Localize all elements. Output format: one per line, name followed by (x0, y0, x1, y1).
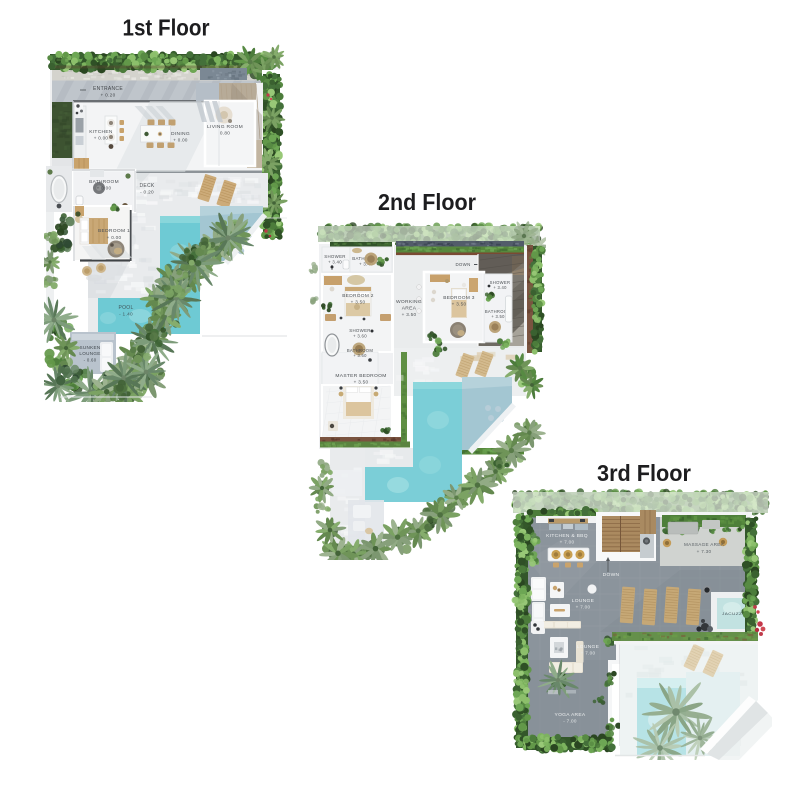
svg-text:LOUNGE: LOUNGE (572, 598, 595, 604)
svg-text:MASSAGE AREA: MASSAGE AREA (684, 542, 724, 548)
svg-text:+ 7.00: + 7.00 (576, 605, 591, 610)
svg-text:+ 0.00: + 0.00 (97, 186, 112, 191)
svg-text:ENTRANCE: ENTRANCE (93, 86, 123, 92)
svg-text:DECK: DECK (139, 183, 154, 189)
svg-text:LIVING ROOM: LIVING ROOM (207, 124, 243, 130)
svg-text:+ 0.00: + 0.00 (173, 138, 188, 143)
svg-text:+ 0.00: + 0.00 (94, 136, 109, 141)
svg-text:2nd Floor: 2nd Floor (378, 189, 476, 215)
svg-text:0.80: 0.80 (220, 131, 230, 136)
svg-text:KITCHEN & BBQ: KITCHEN & BBQ (546, 533, 588, 539)
svg-text:- 7.00: - 7.00 (563, 719, 577, 724)
svg-text:POOL: POOL (118, 305, 133, 311)
svg-text:+ 7.30: + 7.30 (697, 549, 712, 554)
svg-text:+ 3.40: + 3.40 (328, 260, 342, 265)
svg-text:+ 3.50: + 3.50 (452, 302, 467, 307)
svg-text:AREA: AREA (402, 306, 417, 312)
svg-text:- 0.60: - 0.60 (84, 358, 97, 363)
svg-text:DOWN: DOWN (603, 572, 620, 578)
svg-text:MASTER BEDROOM: MASTER BEDROOM (335, 373, 386, 379)
svg-text:+ 0.20: + 0.20 (101, 93, 116, 98)
svg-text:DOWN: DOWN (455, 262, 470, 267)
svg-text:BEDROOM 1: BEDROOM 1 (98, 228, 130, 234)
svg-text:BATHROOM: BATHROOM (89, 179, 119, 185)
svg-text:+ 3.50: + 3.50 (351, 300, 366, 305)
svg-text:- 0.20: - 0.20 (140, 190, 154, 195)
svg-text:+ 7.00: + 7.00 (560, 540, 575, 545)
svg-text:WORKING: WORKING (396, 299, 422, 305)
svg-text:+ 3.40: + 3.40 (493, 285, 507, 290)
svg-text:SUNKEN: SUNKEN (80, 345, 101, 350)
svg-text:+ 3.50: + 3.50 (354, 380, 369, 385)
svg-text:BEDROOM 2: BEDROOM 2 (342, 293, 374, 299)
svg-text:+ 3.50: + 3.50 (491, 314, 505, 319)
svg-text:SHOWER: SHOWER (324, 254, 346, 259)
svg-text:KITCHEN: KITCHEN (89, 129, 113, 135)
svg-text:JACUZZI: JACUZZI (722, 612, 744, 616)
svg-text:1st Floor: 1st Floor (123, 15, 210, 41)
svg-text:+ 3.60: + 3.60 (353, 353, 367, 358)
svg-text:+ 0.00: + 0.00 (107, 235, 122, 240)
svg-text:BEDROOM 3: BEDROOM 3 (443, 295, 475, 301)
svg-text:YOGA AREA: YOGA AREA (555, 712, 586, 718)
svg-text:DINING: DINING (171, 131, 190, 137)
svg-text:+ 7.00: + 7.00 (581, 651, 596, 656)
svg-text:+ 3.50: + 3.50 (402, 312, 417, 317)
svg-text:3rd Floor: 3rd Floor (597, 460, 691, 486)
svg-text:LOUNGE: LOUNGE (79, 351, 100, 356)
svg-text:+ 3.60: + 3.60 (353, 334, 367, 339)
svg-text:LOUNGE: LOUNGE (577, 644, 600, 650)
svg-text:- 1.40: - 1.40 (119, 312, 133, 317)
svg-text:SHOWER: SHOWER (349, 328, 371, 333)
